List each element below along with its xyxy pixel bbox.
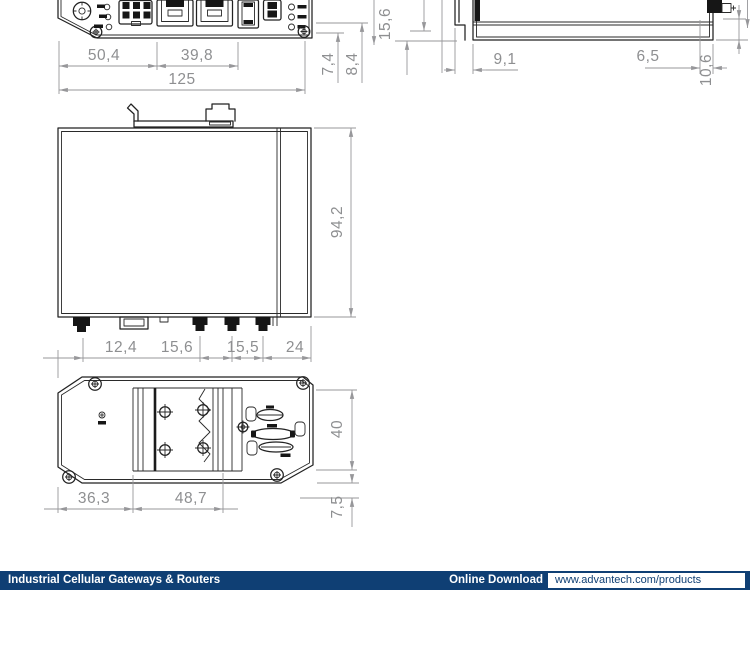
dim-125: 125 [168, 71, 195, 88]
dim-24: 24 [286, 339, 304, 356]
din-rail-mount [133, 388, 242, 471]
dim-48-7: 48,7 [175, 490, 207, 507]
dim-12-4: 12,4 [105, 339, 137, 356]
din-mount-screw [195, 402, 211, 418]
usb-port [238, 0, 259, 28]
footer-download-label: Online Download [449, 571, 543, 590]
dim-39-8: 39,8 [181, 47, 213, 64]
led-indicators-left [94, 4, 112, 30]
top-view-dimensions: 94,2 12,4 15,6 15,5 24 [43, 128, 356, 378]
footer-url-text[interactable]: www.advantech.com/products [548, 573, 745, 588]
grounding-screw [98, 412, 106, 425]
antenna-connector-front [73, 2, 90, 19]
dim-10-6: 10,6 [698, 54, 715, 86]
dim-40: 40 [329, 420, 346, 438]
front-view [58, 0, 312, 38]
din-mount-screw [157, 404, 173, 420]
dim-15-6-top: 15,6 [161, 339, 193, 356]
screw [297, 377, 310, 390]
rj45-port-1 [157, 0, 193, 26]
dim-15-5: 15,5 [227, 339, 259, 356]
side-panel-edge [475, 0, 481, 21]
bottom-view-dimensions: 40 7,5 36,3 48,7 [44, 390, 359, 527]
dim-9-1: 9,1 [493, 51, 516, 68]
screw [89, 378, 102, 391]
dim-94-2: 94,2 [329, 206, 346, 238]
dim-6-5: 6,5 [636, 48, 659, 65]
dim-36-3: 36,3 [78, 490, 110, 507]
technical-drawing-canvas: 50,4 39,8 125 7,4 8,4 15,6 9, [0, 0, 750, 565]
rj45-port-2 [197, 0, 233, 26]
dim-8-4: 8,4 [344, 52, 361, 75]
footer-url-box[interactable]: www.advantech.com/products [548, 573, 745, 588]
dim-15-6-front: 15,6 [377, 8, 394, 40]
cover-screw [237, 421, 250, 434]
top-view [58, 104, 311, 332]
antenna-connector-side [707, 0, 736, 13]
footer-bar: Industrial Cellular Gateways & Routers O… [0, 571, 750, 590]
footer-category-label: Industrial Cellular Gateways & Routers [8, 571, 220, 590]
power-connector [119, 1, 152, 26]
dim-7-4: 7,4 [320, 52, 337, 75]
dim-7-5: 7,5 [329, 495, 346, 518]
io-connector [264, 0, 282, 20]
side-view [455, 0, 736, 40]
datasheet-page: 50,4 39,8 125 7,4 8,4 15,6 9, [0, 0, 750, 650]
side-view-dimensions: 9,1 6,5 10,6 [442, 0, 748, 86]
dim-50-4: 50,4 [88, 47, 120, 64]
corner-screws [63, 377, 310, 484]
din-mount-screw [195, 440, 211, 456]
bottom-view [58, 377, 313, 484]
din-rail-clip [128, 104, 236, 127]
din-mount-screw [157, 442, 173, 458]
bottom-edge-connectors [73, 317, 277, 332]
sim-cover-cluster [237, 406, 306, 458]
din-clip-spring [199, 389, 210, 462]
